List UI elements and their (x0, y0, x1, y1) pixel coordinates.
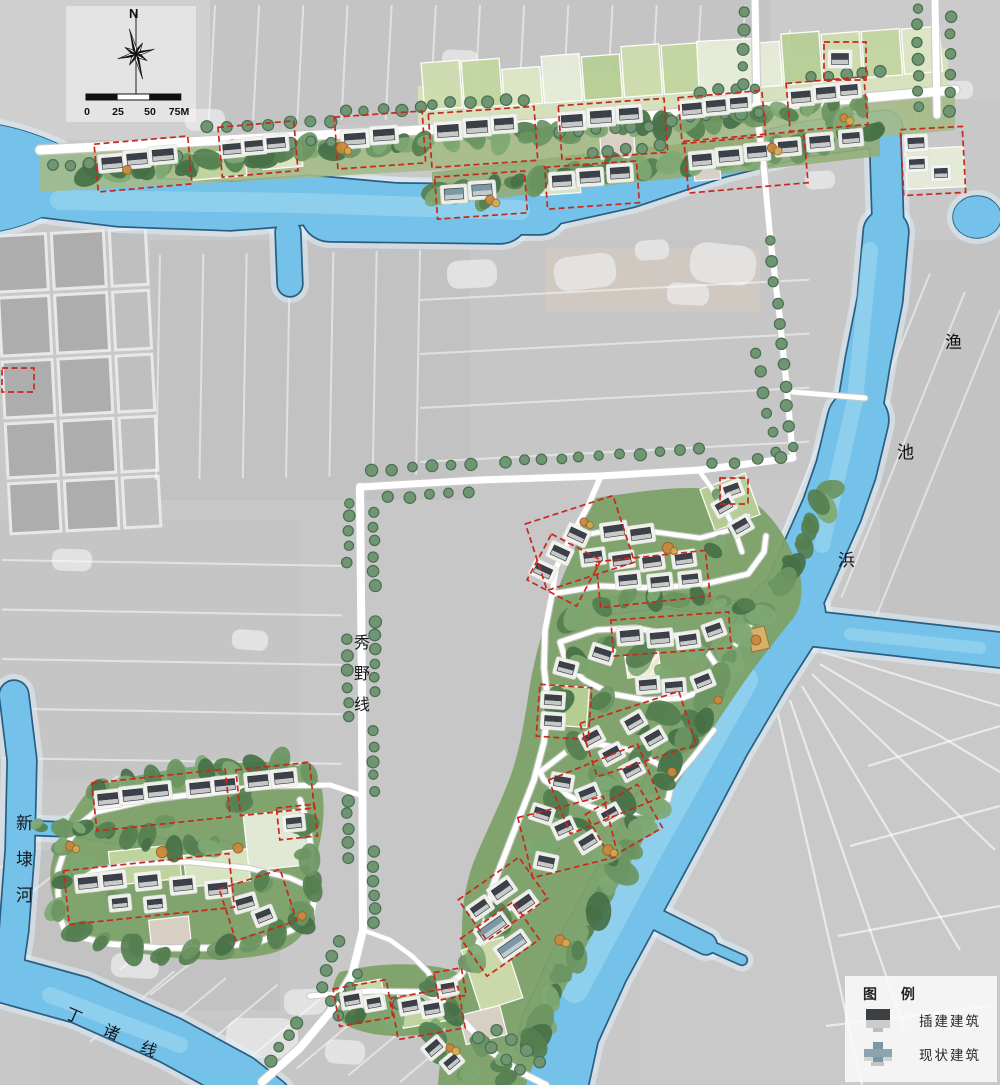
road-label-xiuyexian: 秀野线 (347, 634, 371, 727)
scale-tick-25: 25 (112, 106, 124, 118)
building-infill (904, 133, 929, 152)
building-infill (369, 125, 399, 146)
building-infill (210, 774, 240, 796)
building-infill (743, 141, 772, 162)
building-infill (557, 110, 587, 132)
site-plan-map: N 0 25 50 75M 渔 池 浜 秀野线 新埭河 丁诸线 图 例 插建建筑 (0, 0, 1000, 1085)
river-label-chi: 池 (897, 438, 914, 463)
building-infill (787, 86, 816, 107)
building-infill (626, 523, 656, 546)
building-infill (616, 625, 645, 646)
building-infill (397, 995, 423, 1017)
building-infill (646, 572, 674, 593)
building-infill (638, 551, 666, 572)
building-infill (828, 50, 853, 69)
building-infill (688, 149, 717, 170)
legend-item-existing: 现状建筑 (861, 1040, 895, 1068)
building-infill (677, 569, 703, 588)
river-label-yu: 渔 (945, 328, 962, 353)
building-infill (548, 171, 576, 192)
legend-item-label: 现状建筑 (919, 1044, 981, 1064)
scale-tick-75: 75M (169, 106, 189, 118)
building-infill (586, 106, 616, 128)
building-infill (490, 114, 518, 135)
building-infill (270, 767, 299, 789)
building-infill (614, 570, 642, 591)
building-infill (143, 780, 173, 802)
building-infill (635, 675, 661, 695)
north-label: N (129, 6, 138, 21)
scale-tick-50: 50 (144, 106, 156, 118)
building-infill (540, 690, 566, 710)
north-arrow-icon (118, 12, 155, 98)
building-infill (148, 144, 179, 165)
building-infill (169, 874, 198, 896)
river-label-bang: 浜 (838, 546, 855, 571)
building-infill (714, 145, 744, 166)
building-infill (204, 878, 233, 900)
building-infill (836, 80, 862, 100)
building-infill (646, 627, 675, 648)
legend-item-infill: 插建建筑 (861, 1006, 895, 1034)
building-infill (726, 93, 752, 113)
building-infill (134, 870, 163, 892)
building-infill (243, 770, 273, 792)
building-infill (108, 893, 133, 912)
building-infill (339, 989, 365, 1011)
map-canvas (0, 0, 1000, 1085)
building-infill (462, 116, 492, 138)
building-infill (99, 869, 128, 891)
building-infill (74, 872, 103, 894)
scale-bar (86, 94, 181, 100)
building-infill (606, 163, 634, 184)
legend-item-label: 插建建筑 (919, 1010, 981, 1030)
building-infill (930, 164, 952, 182)
existing-building-icon (861, 1040, 895, 1068)
building-infill (579, 546, 607, 567)
building-infill (540, 711, 566, 731)
building-infill (674, 629, 701, 650)
building-infill (433, 120, 463, 142)
building-infill (143, 894, 168, 913)
building-infill (661, 677, 687, 697)
building-existing (440, 184, 468, 205)
north-scale-panel: N 0 25 50 75M (66, 6, 196, 122)
building-infill (805, 131, 835, 152)
building-infill (575, 167, 604, 188)
building-infill (905, 155, 929, 173)
building-infill (362, 993, 386, 1013)
building-infill (838, 128, 864, 148)
building-infill (419, 998, 445, 1020)
river-label-xindaihe: 新埭河 (10, 814, 35, 922)
infill-building-icon (861, 1006, 895, 1034)
legend: 图 例 插建建筑 现状建筑 (845, 976, 997, 1082)
building-infill (282, 813, 307, 833)
building-infill (262, 133, 289, 153)
legend-title: 图 例 (863, 984, 925, 1004)
scale-tick-0: 0 (84, 106, 90, 118)
building-infill (615, 104, 643, 125)
